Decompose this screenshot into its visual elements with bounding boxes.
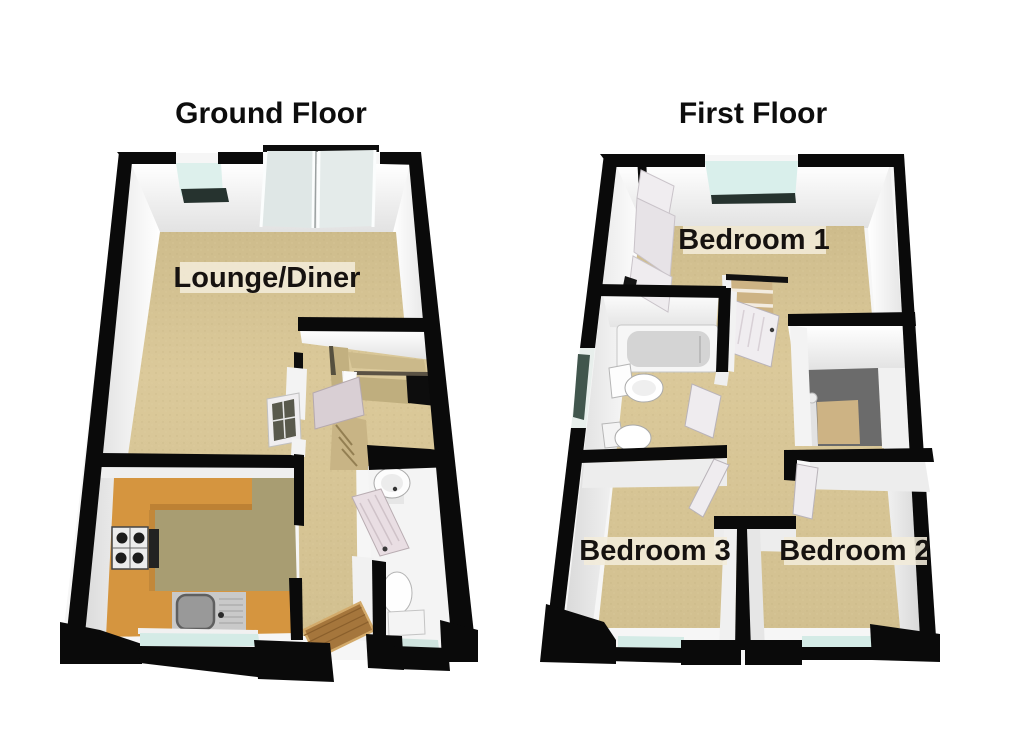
svg-text:Bedroom 2: Bedroom 2 xyxy=(779,535,930,567)
svg-text:Ground Floor: Ground Floor xyxy=(175,97,367,130)
svg-text:Bedroom 3: Bedroom 3 xyxy=(579,535,730,567)
svg-text:Lounge/Diner: Lounge/Diner xyxy=(174,262,361,294)
svg-text:First Floor: First Floor xyxy=(679,97,828,130)
svg-text:Bedroom 1: Bedroom 1 xyxy=(678,224,829,256)
